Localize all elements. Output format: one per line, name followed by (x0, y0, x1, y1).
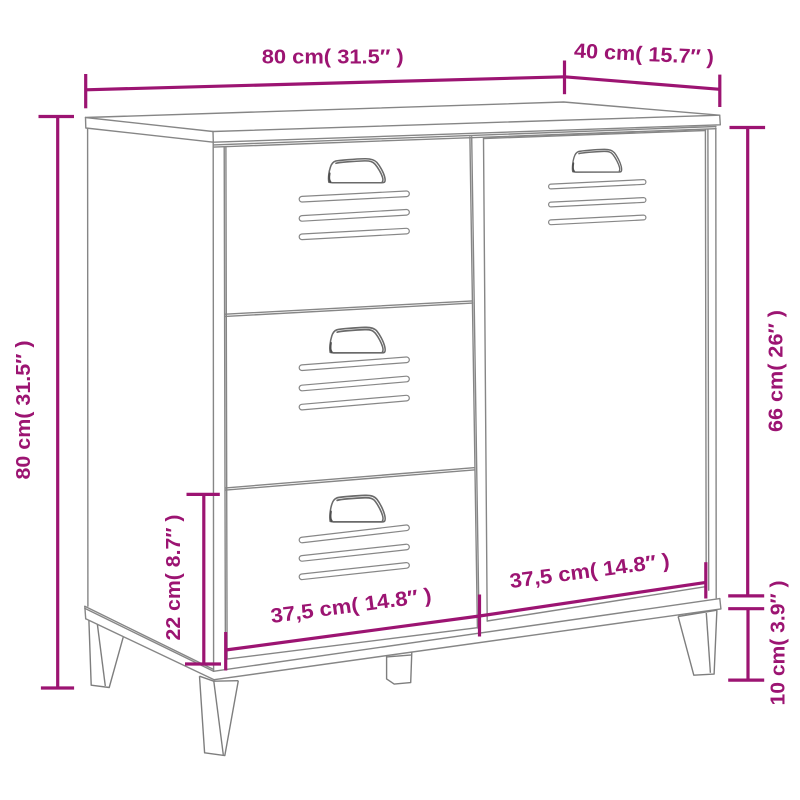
svg-text:37,5 cm( 14.8″ ): 37,5 cm( 14.8″ ) (508, 549, 671, 593)
svg-text:66 cm( 26″ ): 66 cm( 26″ ) (764, 310, 787, 432)
svg-text:80 cm( 31.5″ ): 80 cm( 31.5″ ) (12, 341, 35, 480)
svg-text:22 cm( 8.7″ ): 22 cm( 8.7″ ) (162, 515, 185, 641)
svg-text:40 cm( 15.7″ ): 40 cm( 15.7″ ) (573, 39, 714, 69)
svg-text:10 cm( 3.9″ ): 10 cm( 3.9″ ) (767, 581, 790, 706)
svg-text:80 cm( 31.5″ ): 80 cm( 31.5″ ) (262, 46, 404, 69)
svg-text:37,5 cm( 14.8″ ): 37,5 cm( 14.8″ ) (269, 584, 433, 628)
